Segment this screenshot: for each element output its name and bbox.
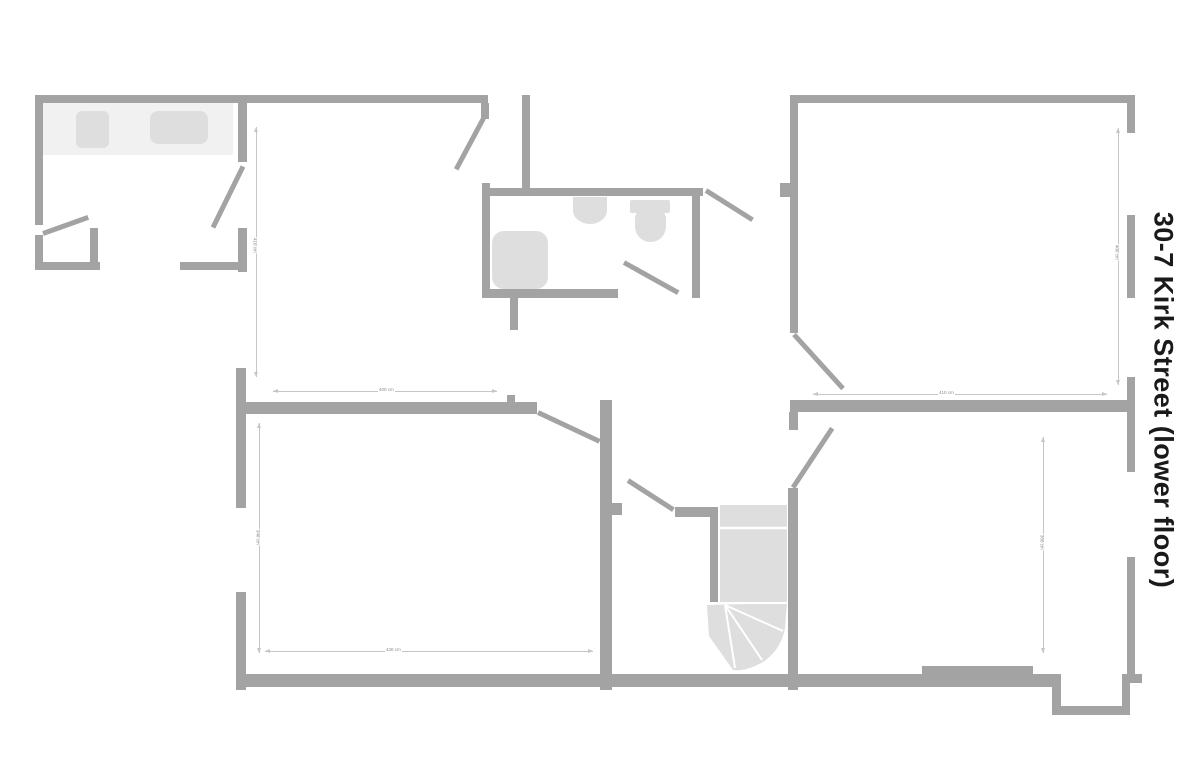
wall-segment [510,298,518,330]
wall-segment [612,503,622,515]
dimension-label: 380 cm [1039,534,1044,551]
wall-segment [238,402,537,414]
wall-segment [692,196,700,298]
dimension-label: 340 cm [255,529,260,546]
wall-segment [522,95,530,190]
wall-segment [790,95,1135,103]
dimension-line [813,394,1107,395]
wall-segment [90,228,98,270]
cooktop [76,111,109,148]
wall-segment [790,400,1135,412]
toilet-bowl [635,209,666,242]
staircase [695,498,795,673]
wall-segment [1052,706,1130,715]
dimension-label: 430 cm [385,648,402,653]
wall-segment [482,289,618,298]
wall-segment [1127,377,1135,472]
door-room-bottom-left [537,410,601,443]
wall-segment [238,95,247,162]
kitchen-appliance [150,111,208,144]
wall-segment [236,674,1053,687]
wall-segment [35,95,43,225]
door-bathroom [623,260,680,295]
wall-segment [238,228,247,272]
dimension-label: 410 cm [252,237,257,254]
door-closet [42,215,89,236]
wall-segment [780,183,790,197]
wall-segment [600,400,612,690]
dimension-label: 400 cm [1114,244,1119,261]
wall-segment [483,188,703,196]
wall-segment [35,95,488,103]
wall-segment [482,183,490,298]
door-room-top-left [454,114,487,170]
door-room-top-right [792,333,845,390]
wall-segment [790,95,798,333]
door-kitchen [211,165,246,228]
washbasin-icon [573,197,607,224]
dimension-line [265,651,593,652]
wall-segment [1127,557,1135,683]
door-hall-center [627,478,675,511]
dimension-label: 400 cm [378,388,395,393]
shower [492,231,548,289]
wall-segment [236,368,246,508]
window-sill [922,666,1033,674]
door-room-bottom-right [791,427,834,489]
plan-title: 30-7 Kirk Street (lower floor) [1148,212,1179,589]
wall-segment [789,412,798,430]
wall-segment [1127,215,1135,298]
floor-plan: 410 cm 400 cm 400 cm 410 cm 340 cm 430 c… [0,0,1197,768]
door-hall-top [705,188,754,222]
dimension-label: 410 cm [938,391,955,396]
wall-segment [180,262,247,270]
